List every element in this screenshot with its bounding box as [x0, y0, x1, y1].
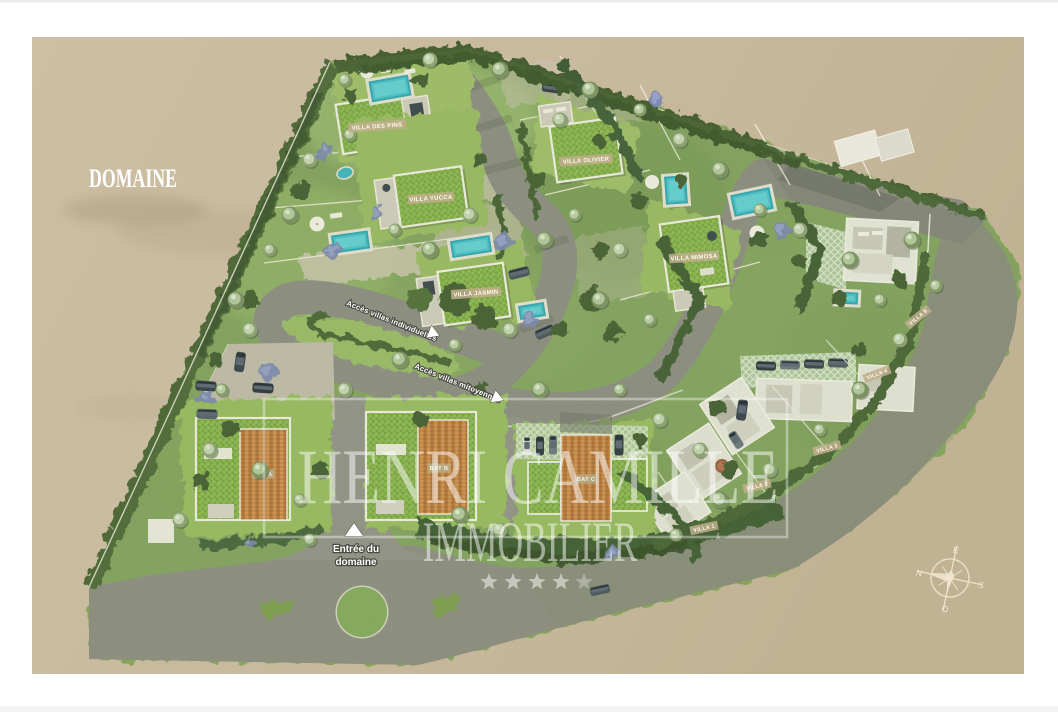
svg-text:domaine: domaine	[335, 557, 377, 568]
svg-text:DOMAINE: DOMAINE	[89, 164, 177, 193]
svg-text:HENRI CAMILLE: HENRI CAMILLE	[298, 433, 779, 520]
svg-text:Entrée du: Entrée du	[333, 544, 379, 555]
svg-text:IMMOBILIER: IMMOBILIER	[423, 511, 638, 574]
